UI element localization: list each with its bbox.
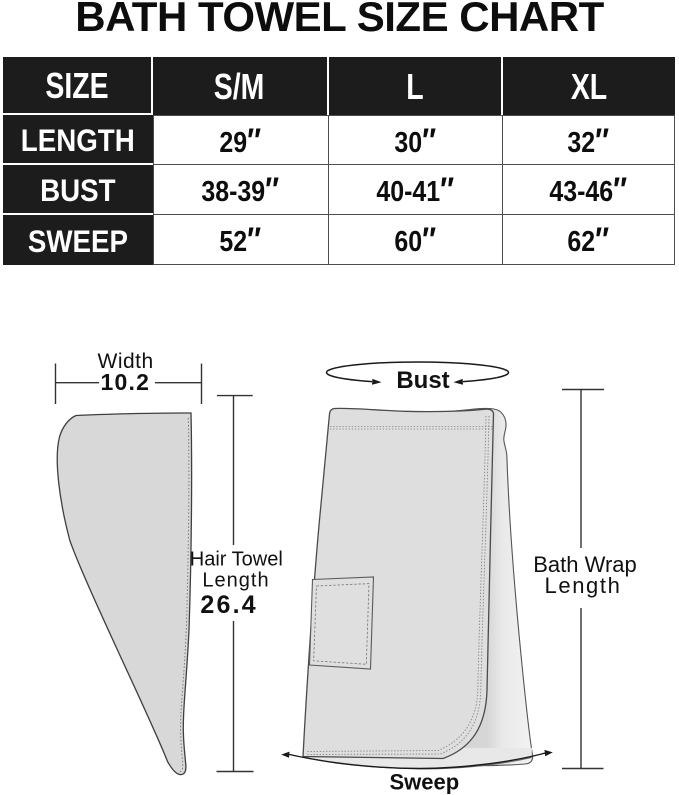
svg-text:Bust: Bust bbox=[396, 367, 449, 394]
svg-text:Sweep: Sweep bbox=[389, 770, 459, 795]
svg-text:26.4: 26.4 bbox=[200, 591, 257, 619]
svg-text:Hair Towel: Hair Towel bbox=[190, 549, 283, 571]
svg-text:Length: Length bbox=[545, 573, 622, 598]
svg-text:10.2: 10.2 bbox=[101, 369, 151, 395]
svg-text:Length: Length bbox=[202, 569, 269, 591]
